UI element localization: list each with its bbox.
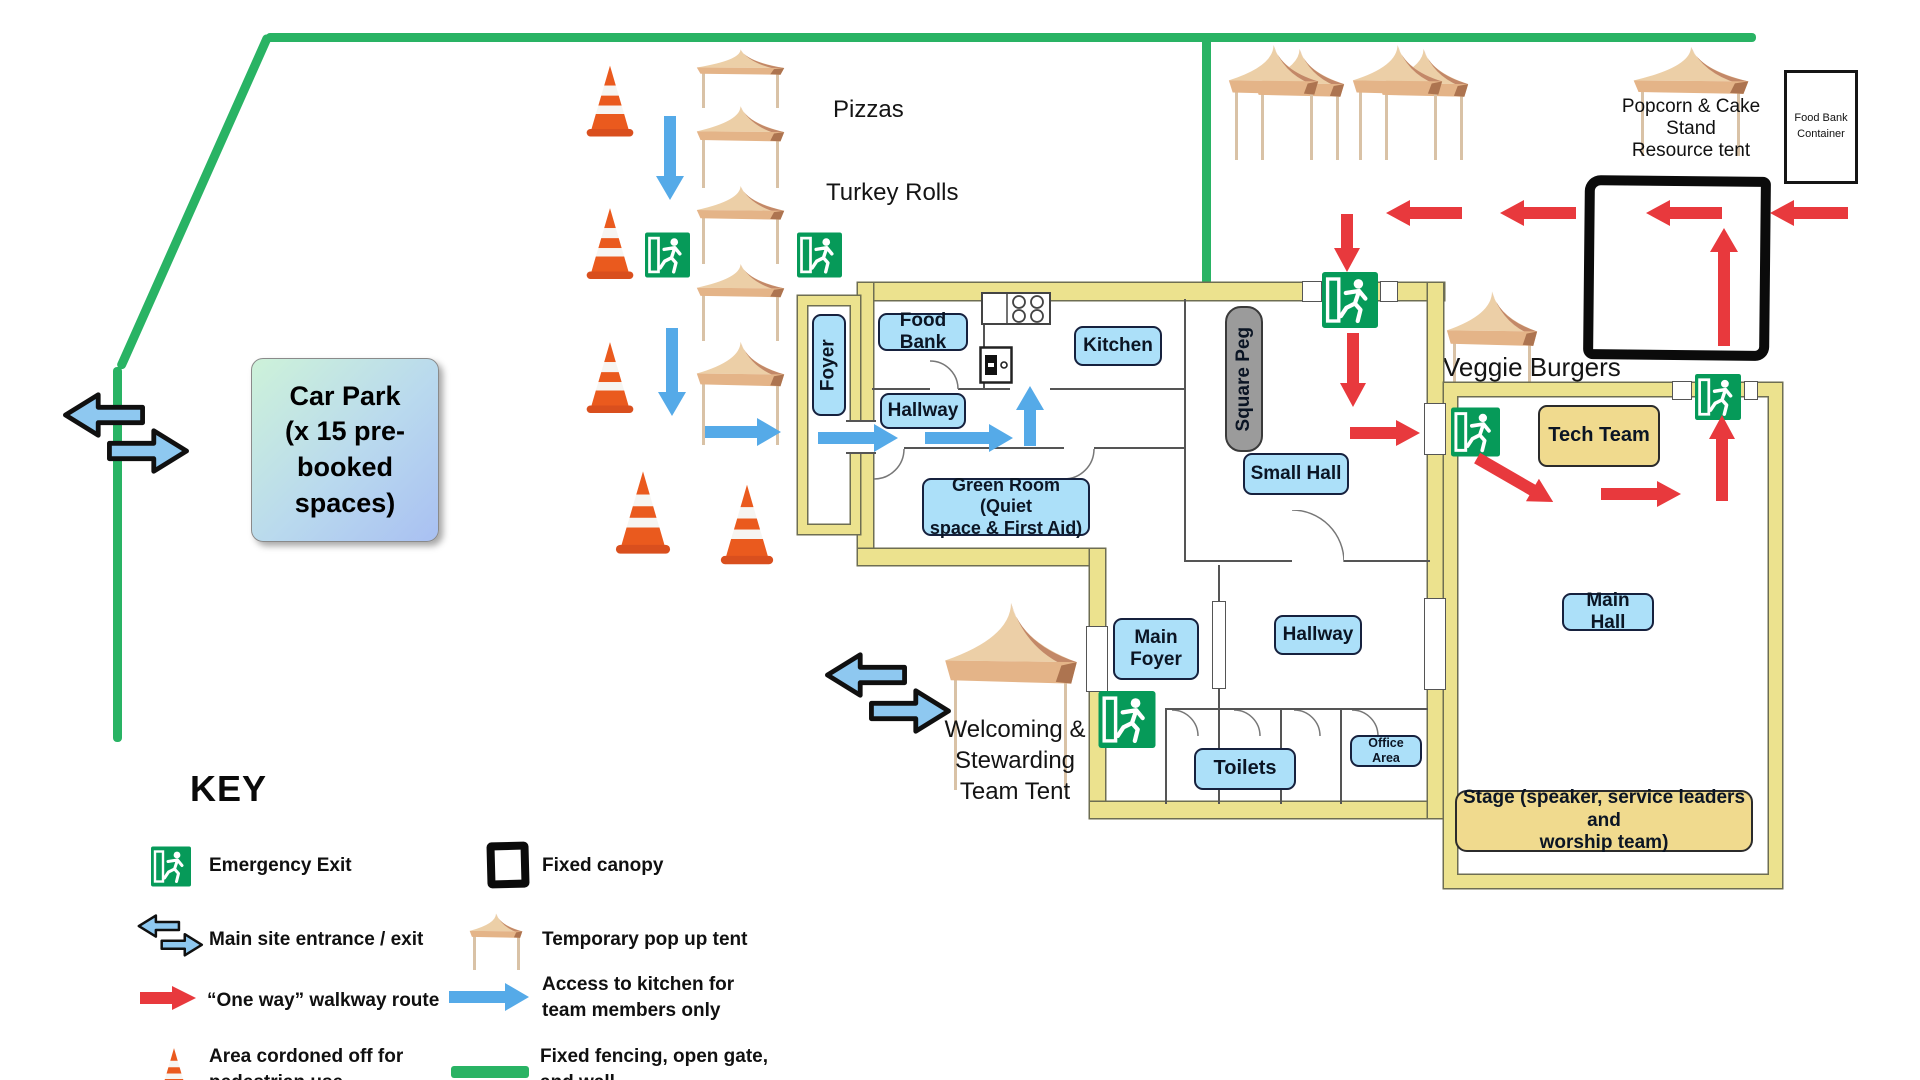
key-emergency-exit-icon	[151, 844, 191, 889]
room-label-foyer: Foyer	[812, 314, 846, 416]
door-arc	[1234, 710, 1261, 737]
exit-running-man-glyph	[1694, 374, 1742, 420]
traffic-cone-glyph	[585, 58, 635, 145]
door-opening	[1424, 598, 1446, 690]
sliding-door	[1212, 601, 1226, 689]
door-opening	[1424, 403, 1446, 455]
pop-up-tent	[694, 104, 787, 188]
key-emergency-exit-label: Emergency Exit	[209, 853, 352, 879]
label-veggie-burgers: Veggie Burgers	[1443, 352, 1621, 383]
room-label-hallway-bottom: Hallway	[1274, 615, 1362, 655]
traffic-cone-glyph	[718, 482, 776, 568]
fence-top	[266, 33, 1756, 42]
interior-wall	[1050, 388, 1186, 390]
car-park-label: Car Park (x 15 pre- booked spaces)	[251, 358, 439, 542]
building-wall	[858, 549, 1105, 565]
key-cone-icon	[158, 1044, 190, 1080]
room-label-stage: Stage (speaker, service leaders andworsh…	[1455, 790, 1753, 852]
traffic-cone	[718, 482, 776, 568]
tent-canopy	[1630, 44, 1752, 98]
key-fixed-canopy-label: Fixed canopy	[542, 853, 663, 879]
fence-diagonal	[116, 33, 273, 370]
tent-canopy	[694, 104, 787, 144]
interior-wall	[1094, 447, 1186, 449]
door-arc	[874, 449, 905, 480]
fixed-canopy	[1583, 175, 1771, 361]
door-arc	[1352, 710, 1379, 737]
tent-canopy	[941, 598, 1081, 690]
building-wall	[1428, 283, 1443, 818]
traffic-cone	[585, 200, 635, 288]
tent-canopy	[694, 184, 787, 222]
one-way-arrow	[1500, 200, 1576, 226]
door-arc	[1292, 510, 1344, 562]
key-tent-icon	[468, 912, 524, 970]
tent-canopy	[694, 262, 787, 300]
room-label-tech-team: Tech Team	[1538, 405, 1660, 467]
traffic-cone-glyph	[585, 334, 635, 422]
room-label-main-foyer: MainFoyer	[1113, 618, 1199, 680]
interior-wall	[1344, 560, 1430, 562]
room-label-toilets: Toilets	[1194, 748, 1296, 790]
emergency-exit-icon	[1451, 407, 1500, 457]
key-kitchen-access-icon	[449, 983, 529, 1011]
one-way-arrow	[1350, 420, 1420, 446]
room-label-kitchen: Kitchen	[1074, 326, 1162, 366]
tent-canopy	[1252, 46, 1347, 101]
site-map: Pizzas Turkey Rolls Veggie Burgers Popco…	[0, 0, 1920, 1080]
sink-icon	[979, 346, 1013, 384]
pop-up-tent	[694, 48, 787, 108]
label-pizzas: Pizzas	[833, 96, 904, 124]
door-opening	[1672, 381, 1692, 400]
kitchen-access-arrow	[658, 328, 686, 416]
key-fencing-icon	[451, 1066, 529, 1078]
label-welcoming-tent: Welcoming & Stewarding Team Tent	[930, 714, 1100, 808]
toilet-stall-wall	[1340, 710, 1342, 804]
pop-up-tent	[1226, 42, 1321, 160]
traffic-cone-glyph	[614, 468, 672, 558]
traffic-cone	[614, 468, 672, 558]
key-one-way-label: “One way” walkway route	[207, 988, 439, 1014]
room-label-small-hall: Small Hall	[1243, 453, 1349, 495]
traffic-cone	[585, 334, 635, 422]
door-arc	[930, 360, 959, 389]
exit-running-man-glyph	[151, 844, 191, 889]
tent-canopy	[1444, 288, 1540, 350]
emergency-exit-icon	[1098, 691, 1156, 748]
room-label-square-peg: Square Peg	[1225, 306, 1263, 452]
food-bank-container: Food Bank Container	[1784, 70, 1858, 184]
tent-canopy	[1226, 42, 1321, 99]
kitchen-access-arrow	[1016, 386, 1044, 446]
key-fixed-canopy-icon	[486, 841, 529, 888]
room-label-office-area: Office Area	[1350, 735, 1422, 767]
door-opening	[1086, 626, 1108, 692]
entrance-arrow-right	[104, 424, 192, 478]
interior-wall	[904, 447, 1064, 449]
exit-running-man-glyph	[797, 232, 842, 278]
interior-wall	[1165, 708, 1167, 804]
welcoming-entrance-arrows	[822, 648, 954, 740]
emergency-exit-icon	[645, 232, 690, 278]
room-label-green-room: Green Room (Quietspace & First Aid)	[922, 478, 1090, 536]
pop-up-tent	[1350, 42, 1445, 160]
interior-wall	[1184, 560, 1292, 562]
tent-canopy	[694, 339, 787, 390]
key-fencing-label: Fixed fencing, open gate,and wall	[540, 1044, 768, 1080]
one-way-arrow	[1770, 200, 1848, 226]
exit-running-man-glyph	[1451, 407, 1500, 457]
door-arc	[1294, 710, 1321, 737]
key-kitchen-access-label: Access to kitchen forteam members only	[542, 972, 734, 1023]
room-label-main-hall: Main Hall	[1562, 593, 1654, 631]
pop-up-tent	[694, 184, 787, 264]
door-opening	[1744, 381, 1758, 400]
one-way-arrow	[1334, 214, 1360, 272]
traffic-cone	[585, 58, 635, 145]
emergency-exit-icon	[1694, 374, 1742, 420]
emergency-exit-icon	[797, 232, 842, 278]
tent-canopy	[468, 912, 524, 940]
tent-canopy	[1376, 46, 1471, 101]
traffic-cone-glyph	[158, 1044, 190, 1080]
emergency-exit-icon	[1322, 272, 1378, 328]
key-main-entrance-label: Main site entrance / exit	[209, 927, 423, 953]
door-opening	[1302, 281, 1322, 302]
key-one-way-icon	[140, 986, 196, 1010]
key-pop-up-tent-label: Temporary pop up tent	[542, 927, 747, 953]
tent-canopy	[1350, 42, 1445, 99]
label-turkey-rolls: Turkey Rolls	[826, 179, 958, 207]
pop-up-tent	[1376, 46, 1471, 160]
door-opening	[1380, 281, 1398, 302]
traffic-cone-glyph	[585, 200, 635, 288]
key-cordoned-label: Area cordoned off forpedestrian use	[209, 1044, 403, 1080]
interior-wall	[1184, 299, 1186, 562]
exit-running-man-glyph	[645, 232, 690, 278]
room-label-food-bank: Food Bank	[878, 313, 968, 351]
kitchen-access-arrow	[705, 418, 781, 446]
key-title: KEY	[190, 768, 267, 810]
exit-running-man-glyph	[1322, 272, 1378, 328]
entrance-arrow-right	[159, 931, 205, 959]
stove-icon	[981, 292, 1051, 325]
door-arc	[1172, 710, 1199, 737]
kitchen-access-arrow	[656, 116, 684, 200]
key-main-entrance-icon	[136, 912, 205, 960]
tent-canopy	[694, 48, 787, 77]
interior-wall	[872, 388, 930, 390]
main-entrance-arrows	[60, 388, 192, 480]
building-wall	[1090, 802, 1443, 818]
pop-up-tent	[694, 262, 787, 341]
label-popcorn-stand: Popcorn & Cake Stand Resource tent	[1602, 96, 1780, 162]
entrance-arrow-right	[866, 684, 954, 738]
room-label-hallway-top: Hallway	[880, 393, 966, 429]
pop-up-tent	[1252, 46, 1347, 160]
fence-middle-vertical	[1202, 38, 1211, 285]
one-way-arrow	[1340, 333, 1366, 407]
exit-running-man-glyph	[1098, 691, 1156, 748]
one-way-arrow	[1386, 200, 1462, 226]
